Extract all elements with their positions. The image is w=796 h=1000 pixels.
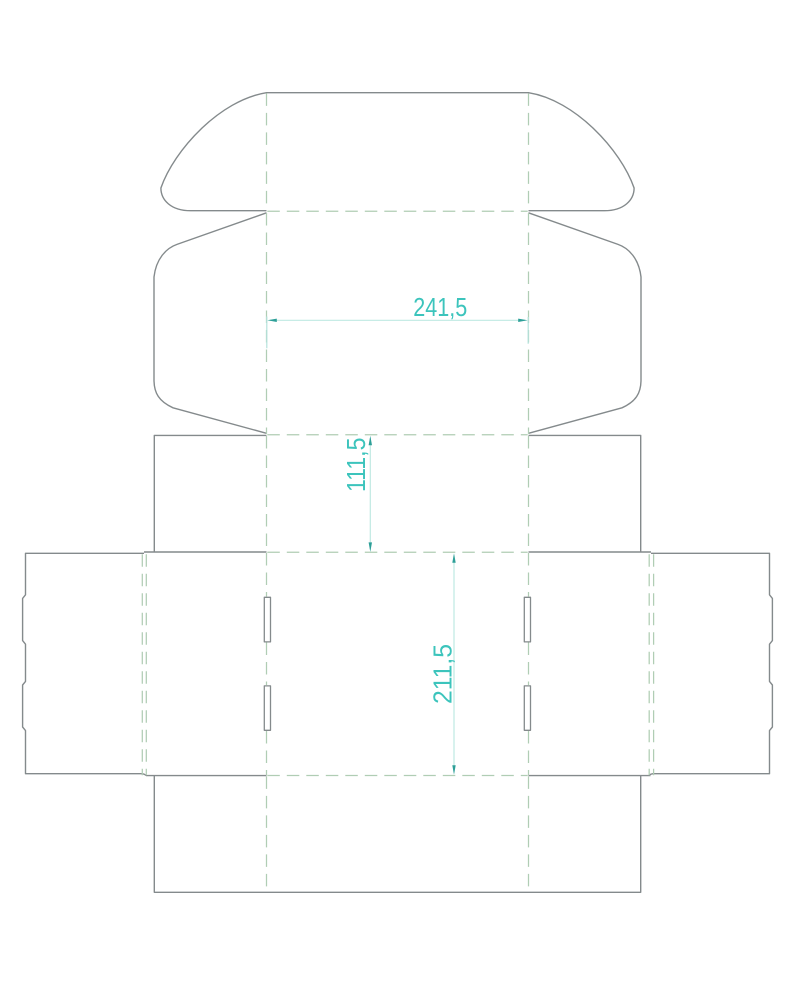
svg-text:241,5: 241,5 <box>413 292 467 322</box>
svg-text:211,5: 211,5 <box>428 644 458 704</box>
svg-text:111,5: 111,5 <box>341 438 371 493</box>
